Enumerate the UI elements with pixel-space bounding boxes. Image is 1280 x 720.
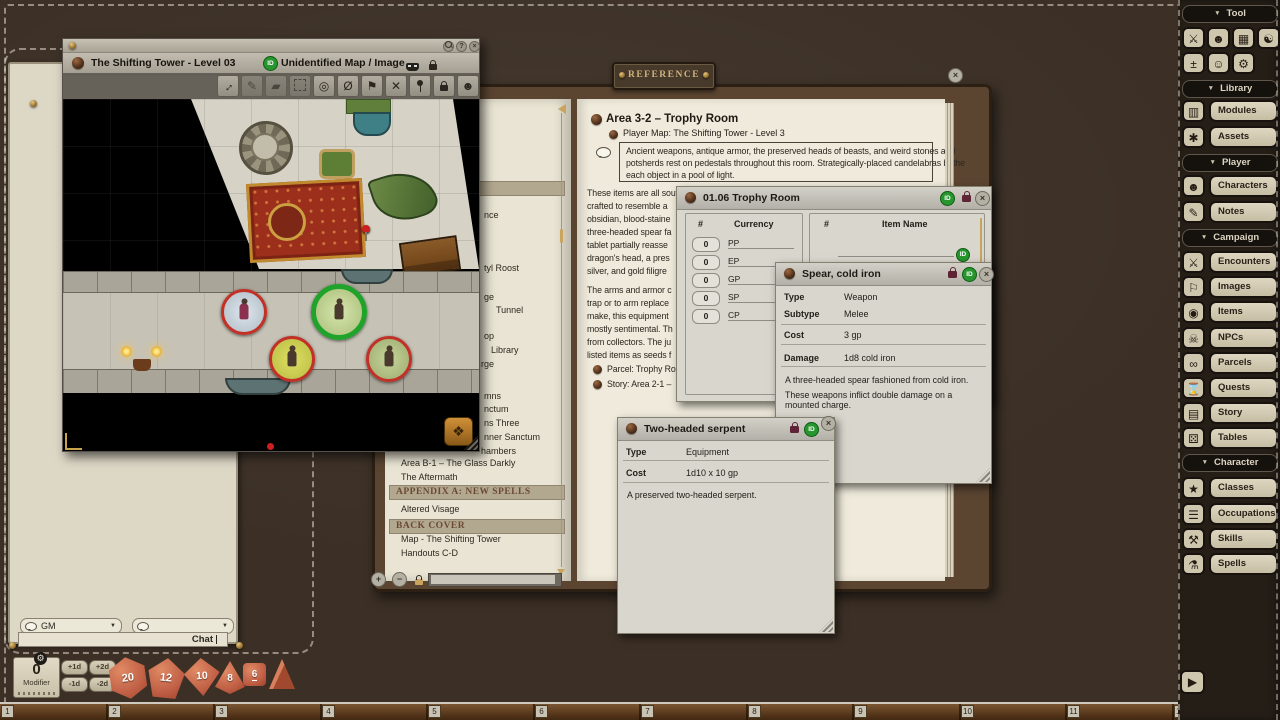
fantasy-grounds-desktop: 1 2 3 4 5 6 7 8 9 10 11 12 Tool ⚔ ☻ ▦ ☯ … [0, 0, 1280, 720]
item-sphere-icon[interactable] [626, 423, 637, 434]
ruler-number: 1 [1, 705, 14, 718]
map-chair [319, 149, 355, 179]
sidebar-item-encounters[interactable]: Encounters [1209, 251, 1278, 273]
right-sidebar: Tool ⚔ ☻ ▦ ☯ ± ☺ ⚙ Library ▥ Modules ✱ A… [1178, 0, 1280, 720]
currency-qty[interactable]: 0 [692, 273, 720, 288]
sidebar-item-classes[interactable]: Classes [1209, 477, 1278, 499]
options-gear-icon[interactable]: ⚙ [1232, 52, 1255, 74]
die-face-number: 6 [252, 669, 258, 681]
parcel-titlebar[interactable]: 01.06 Trophy Room ID × [677, 187, 991, 210]
items-icon[interactable]: ◉ [1182, 301, 1205, 323]
chat-entry-input[interactable]: Chat [18, 632, 228, 647]
id-badge[interactable]: ID [940, 191, 955, 206]
draw-icon[interactable]: ✎ [241, 75, 263, 97]
toc-item-fragment[interactable]: nctum [484, 404, 509, 414]
effects-icon[interactable]: ☺ [1207, 52, 1230, 74]
read-aloud-line: each object in a pool of light. [626, 170, 734, 180]
candelabra-base [133, 359, 151, 371]
chevron-down-icon: ▼ [222, 623, 228, 629]
toc-item-fragment[interactable]: op [484, 331, 494, 341]
toc-item-fragment[interactable]: Library [491, 345, 519, 355]
resize-grip[interactable] [819, 618, 833, 632]
modifier-label: Modifier [14, 678, 59, 687]
field-label: Cost [784, 330, 804, 340]
read-aloud-box: Ancient weapons, antique armor, the pres… [619, 142, 933, 182]
notes-icon[interactable]: ✎ [1182, 201, 1205, 223]
serpent-titlebar[interactable]: Two-headed serpent ID × [618, 418, 834, 441]
toc-item[interactable]: The Aftermath [401, 472, 458, 482]
item-count-header: # [824, 219, 829, 229]
d10-die[interactable]: 10 [183, 657, 222, 697]
toc-item-fragment[interactable]: tyl Roost [484, 263, 519, 273]
d8-die[interactable]: 8 [215, 661, 245, 694]
story-zoom-in-button[interactable]: + [371, 572, 386, 587]
currency-header: Currency [734, 219, 774, 229]
parcels-coins-icon[interactable]: ∞ [1182, 352, 1205, 374]
modules-folder-icon[interactable]: ▥ [1182, 100, 1205, 122]
speech-bubble-icon [25, 622, 37, 631]
die-face-number: 12 [159, 671, 172, 684]
token-pc-warrior[interactable] [269, 336, 315, 382]
map-carpet-medallion [268, 203, 306, 241]
player-map-link[interactable]: Player Map: The Shifting Tower - Level 3 [623, 128, 785, 138]
map-portal-arch [353, 112, 391, 136]
chevron-down-icon: ▼ [110, 623, 116, 629]
d6-die[interactable]: 6 [243, 663, 266, 686]
item-description: A three-headed spear fashioned from cold… [785, 375, 983, 385]
classes-shield-icon[interactable]: ★ [1182, 477, 1205, 499]
pin-icon[interactable] [409, 75, 431, 97]
palette-icon[interactable]: ☯ [1257, 27, 1280, 49]
currency-qty[interactable]: 0 [692, 237, 720, 252]
toc-scrollbar-thumb[interactable] [560, 229, 563, 243]
toc-item-fragment[interactable]: hambers [481, 446, 516, 456]
occupations-doc-icon[interactable]: ☰ [1182, 503, 1205, 525]
sidebar-item-assets[interactable]: Assets [1209, 126, 1278, 148]
currency-qty[interactable]: 0 [692, 255, 720, 270]
ruler-number: 2 [108, 705, 121, 718]
field-label: Type [626, 447, 646, 457]
lock-icon[interactable] [962, 195, 971, 202]
currency-count-header: # [698, 219, 703, 229]
toc-item-fragment[interactable]: mns [484, 391, 501, 401]
story-bullet-sphere[interactable] [591, 114, 602, 125]
sidebar-item-occupations[interactable]: Occupations [1209, 503, 1278, 525]
map-wall-upper [63, 271, 479, 293]
die-face-number: 8 [227, 673, 233, 684]
story-book-icon[interactable]: ▤ [1182, 402, 1205, 424]
sidebar-item-story[interactable]: Story [1209, 402, 1278, 424]
story-lock-icon[interactable] [415, 571, 422, 582]
map-subtitle: Unidentified Map / Image [281, 57, 405, 69]
story-link[interactable]: Story: Area 2-1 – [607, 379, 671, 389]
map-carpet [246, 178, 366, 263]
story-text-line: mostly sentimental. Th [587, 324, 673, 334]
story-text-line: The arms and armor c [587, 285, 672, 295]
sidebar-item-characters[interactable]: Characters [1209, 175, 1278, 197]
field-label: Subtype [784, 309, 820, 319]
target-icon[interactable]: ◎ [313, 75, 335, 97]
toc-chapter-bar[interactable]: BACK COVER [389, 519, 565, 534]
rivet [236, 642, 243, 649]
speech-bubble-icon [137, 622, 149, 631]
toc-scrollbar-track[interactable] [561, 113, 562, 567]
d4-die[interactable] [269, 659, 295, 689]
sidebar-section-library[interactable]: Library [1182, 80, 1278, 98]
map-arch-doorway [225, 378, 291, 395]
currency-qty[interactable]: 0 [692, 291, 720, 306]
sidebar-item-spells[interactable]: Spells [1209, 553, 1278, 575]
rivet [703, 72, 709, 78]
parcel-link[interactable]: Parcel: Trophy Ro [607, 364, 676, 374]
item-name-header: Item Name [882, 219, 928, 229]
map-link-sphere[interactable] [609, 130, 618, 139]
field-value: Weapon [844, 292, 877, 302]
toc-item-fragment[interactable]: ge [484, 292, 494, 302]
map-corner-bracket [65, 433, 82, 450]
toc-item-fragment[interactable]: nce [484, 210, 499, 220]
resize-grip[interactable] [976, 468, 990, 482]
read-aloud-bubble-icon [596, 147, 611, 158]
encounters-swords-icon[interactable]: ⚔ [1182, 251, 1205, 273]
story-hscrollbar-thumb[interactable] [431, 575, 555, 584]
lock-icon[interactable] [948, 271, 957, 278]
sidebar-item-modules[interactable]: Modules [1209, 100, 1278, 122]
sidebar-item-npcs[interactable]: NPCs [1209, 327, 1278, 349]
story-text-line: listed items as seeds f [587, 350, 671, 360]
rivet [9, 642, 16, 649]
candle-flame [151, 346, 162, 357]
close-icon[interactable]: × [469, 41, 480, 52]
characters-icon[interactable]: ☻ [1182, 175, 1205, 197]
rivet [30, 100, 37, 107]
sidebar-item-tables[interactable]: Tables [1209, 427, 1278, 449]
story-text-line: three-headed spear fa [587, 227, 671, 237]
reference-plaque-label: REFERENCE [628, 70, 700, 80]
remove-icon[interactable]: ✕ [385, 75, 407, 97]
field-value: 3 gp [844, 330, 862, 340]
map-shortcut-compass-icon[interactable]: ❖ [444, 417, 473, 446]
toc-item[interactable]: Handouts C-D [401, 548, 458, 558]
hide-visibility-icon[interactable]: Ø [337, 75, 359, 97]
ruler-number: 6 [535, 705, 548, 718]
tables-dice-icon[interactable]: ⚄ [1182, 427, 1205, 449]
map-window-frame-bar[interactable]: ? × [63, 39, 479, 52]
map-red-dot [267, 443, 274, 450]
select-icon[interactable] [289, 75, 311, 97]
story-text-line: trap or to arm replace [587, 298, 669, 308]
lock-icon[interactable] [429, 56, 437, 74]
parcel-sphere-icon[interactable] [685, 192, 696, 203]
modifiers-icon[interactable]: ± [1182, 52, 1205, 74]
sidebar-item-parcels[interactable]: Parcels [1209, 352, 1278, 374]
id-badge[interactable]: ID [263, 56, 278, 71]
d12-die[interactable]: 12 [145, 656, 187, 700]
chat-speaker-value: GM [41, 621, 56, 631]
read-aloud-line: Ancient weapons, antique armor, the pres… [626, 146, 955, 156]
read-aloud-line: potsherds rest on pedestals throughout t… [626, 158, 965, 168]
flag-icon[interactable]: ⚑ [361, 75, 383, 97]
chat-entry-text: Chat [192, 634, 213, 645]
story-text-line: crafted to resemble a [587, 201, 668, 211]
story-text-line: silver, and gold filigre [587, 266, 667, 276]
story-text-line: obsidian, blood-staine [587, 214, 670, 224]
reference-plaque[interactable]: REFERENCE [612, 62, 716, 90]
sidebar-item-notes[interactable]: Notes [1209, 201, 1278, 223]
map-titlebar[interactable]: The Shifting Tower - Level 03 ID Unident… [63, 52, 479, 75]
parcel-title: 01.06 Trophy Room [703, 192, 800, 204]
party-sheet-icon[interactable]: ☻ [1207, 27, 1230, 49]
currency-qty[interactable]: 0 [692, 309, 720, 324]
map-arch-doorway [341, 269, 393, 284]
map-toolbar: ↔ ✎ ▰ ◎ Ø ⚑ ✕ ☻ [63, 73, 479, 99]
rivet [69, 42, 76, 49]
item-description: These weapons inflict double damage on a… [785, 390, 983, 410]
toc-item[interactable]: Map - The Shifting Tower [401, 534, 501, 544]
ruler-number: 8 [748, 705, 761, 718]
map-window: ? × The Shifting Tower - Level 03 ID Uni… [62, 38, 480, 452]
field-label: Type [784, 292, 804, 302]
sidebar-section-player[interactable]: Player [1182, 154, 1278, 172]
sidebar-item-items[interactable]: Items [1209, 301, 1278, 323]
ruler-number: 4 [322, 705, 335, 718]
field-value: 1d8 cold iron [844, 353, 896, 363]
id-badge[interactable]: ID [962, 267, 977, 282]
token-npc-jester[interactable] [221, 289, 267, 335]
item-row-partial [838, 256, 954, 257]
toc-chapter-bar[interactable]: APPENDIX A: NEW SPELLS [389, 485, 565, 500]
toc-item-fragment[interactable]: ns Three [484, 418, 519, 428]
token-pc-archer[interactable] [366, 336, 412, 382]
candle-flame [121, 346, 132, 357]
dice-chain-down-button[interactable]: -1d [61, 677, 88, 692]
player-view-icon[interactable]: ☻ [457, 75, 479, 97]
dice-settings-gear-icon[interactable]: ⚙ [34, 652, 47, 665]
magnify-icon[interactable] [443, 41, 454, 52]
story-text-line: dragon's head, a pres [587, 253, 670, 263]
map-title: The Shifting Tower - Level 03 [91, 57, 236, 69]
die-face-number: 20 [121, 671, 135, 685]
sidebar-item-images[interactable]: Images [1209, 276, 1278, 298]
story-zoom-out-button[interactable]: − [392, 572, 407, 587]
sidebar-item-skills[interactable]: Skills [1209, 528, 1278, 550]
story-link-sphere[interactable] [593, 380, 602, 389]
close-icon[interactable]: × [979, 267, 994, 282]
quests-hourglass-icon[interactable]: ⌛ [1182, 377, 1205, 399]
item-window-serpent: Two-headed serpent ID × Type Equipment C… [617, 417, 835, 634]
help-icon[interactable]: ? [456, 41, 467, 52]
toc-item-fragment[interactable]: rge [481, 359, 494, 369]
parcel-link-sphere[interactable] [593, 365, 602, 374]
story-text-line: make, this equipment [587, 311, 669, 321]
item-sphere-icon[interactable] [784, 268, 795, 279]
sidebar-section-tool[interactable]: Tool [1182, 5, 1278, 23]
story-hscrollbar-track[interactable] [428, 573, 562, 587]
toc-item[interactable]: Area B-1 – The Glass Darkly [401, 458, 515, 468]
toc-item-fragment[interactable]: nner Sanctum [484, 432, 540, 442]
toc-item-fragment[interactable]: Tunnel [496, 305, 523, 315]
field-label: Damage [784, 353, 819, 363]
ruler-number: 5 [428, 705, 441, 718]
close-icon[interactable]: × [975, 191, 990, 206]
modifier-ticks [18, 692, 55, 695]
rivet [619, 72, 625, 78]
ruler-number: 11 [1067, 705, 1080, 718]
ruler-number: 7 [641, 705, 654, 718]
page-title: Area 3-2 – Trophy Room [606, 113, 738, 125]
field-label: Cost [626, 468, 646, 478]
text-cursor [216, 635, 217, 644]
story-text-line: tablet partially reasse [587, 240, 668, 250]
item-description: A preserved two-headed serpent. [627, 490, 827, 500]
spear-titlebar[interactable]: Spear, cold iron ID × [776, 263, 991, 286]
close-icon[interactable]: × [821, 416, 836, 431]
dice-chain-up-button[interactable]: +1d [61, 660, 88, 675]
images-map-icon[interactable]: ⚐ [1182, 276, 1205, 298]
lock-icon[interactable] [790, 426, 799, 433]
page-turn-left-icon[interactable] [558, 104, 566, 114]
sidebar-section-campaign[interactable]: Campaign [1182, 229, 1278, 247]
field-value: Equipment [686, 447, 729, 457]
map-pedestal-top [251, 133, 279, 161]
map-sphere-icon[interactable] [72, 57, 84, 69]
id-badge[interactable]: ID [956, 248, 970, 262]
item-title: Two-headed serpent [644, 423, 745, 435]
story-text-line: from collectors. The ju [587, 337, 671, 347]
spells-icon[interactable]: ⚗ [1182, 553, 1205, 575]
play-icon[interactable]: ▶ [1180, 670, 1205, 694]
skills-tools-icon[interactable]: ⚒ [1182, 528, 1205, 550]
zoom-fit-icon[interactable]: ↔ [217, 75, 239, 97]
die-face-number: 10 [196, 670, 208, 683]
ruler-number: 10 [961, 705, 974, 718]
id-badge[interactable]: ID [804, 422, 819, 437]
field-value: 1d10 x 10 gp [686, 468, 738, 478]
grid-lock-icon[interactable] [433, 75, 455, 97]
map-canvas[interactable]: ❖ [63, 99, 479, 451]
npcs-skull-icon[interactable]: ☠ [1182, 327, 1205, 349]
item-title: Spear, cold iron [802, 268, 881, 280]
eraser-icon[interactable]: ▰ [265, 75, 287, 97]
assets-puzzle-icon[interactable]: ✱ [1182, 126, 1205, 148]
token-pc-active[interactable] [311, 284, 367, 340]
sidebar-section-character[interactable]: Character [1182, 454, 1278, 472]
sidebar-item-quests[interactable]: Quests [1209, 377, 1278, 399]
story-close-icon[interactable]: × [948, 68, 963, 83]
dice-roller-icon[interactable]: ⚔ [1182, 27, 1205, 49]
calendar-icon[interactable]: ▦ [1232, 27, 1255, 49]
map-pin-stick [365, 232, 367, 241]
ruler-number: 3 [215, 705, 228, 718]
bottom-ruler: 1 2 3 4 5 6 7 8 9 10 11 12 [0, 702, 1280, 720]
currency-code[interactable]: PP [728, 238, 794, 249]
field-value: Melee [844, 309, 869, 319]
ruler-number: 9 [854, 705, 867, 718]
toc-item[interactable]: Altered Visage [401, 504, 459, 514]
